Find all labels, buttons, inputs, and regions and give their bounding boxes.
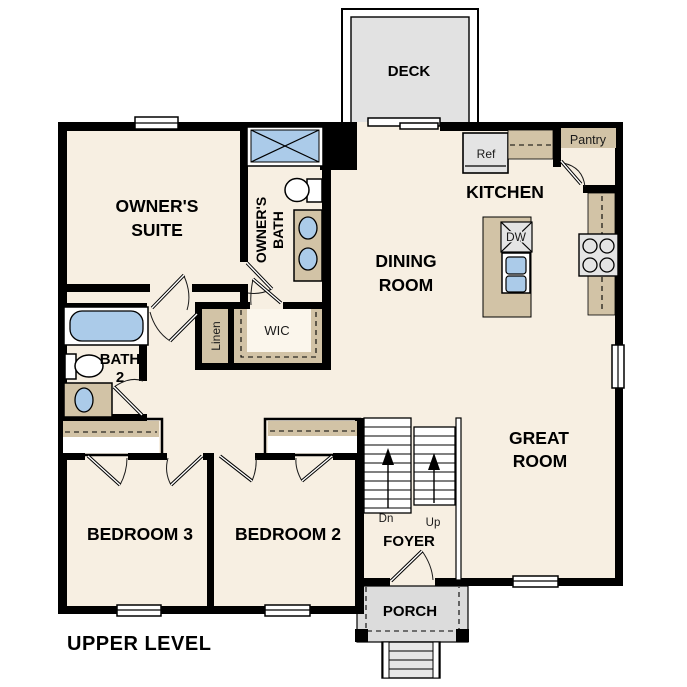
stairs-up-label: Up xyxy=(426,517,441,529)
vanity-icon xyxy=(294,210,322,281)
window xyxy=(117,605,161,616)
dining-label-line1: DINING xyxy=(375,251,436,271)
ref-label: Ref xyxy=(477,147,496,161)
toilet-icon xyxy=(65,354,103,379)
window xyxy=(135,117,178,129)
pantry-label: Pantry xyxy=(570,133,607,147)
room-foyer: FOYER xyxy=(383,533,435,550)
room-bedroom2: BEDROOM 2 xyxy=(235,524,341,544)
porch-label: PORCH xyxy=(383,603,437,620)
floor-plan-page: DECK PORCH xyxy=(0,0,687,687)
window xyxy=(265,605,310,616)
refrigerator-appliance: Ref xyxy=(463,133,508,173)
dining-label-line2: ROOM xyxy=(379,275,433,295)
great-room-label-line2: ROOM xyxy=(513,451,567,471)
bedroom3-label: BEDROOM 3 xyxy=(87,524,193,544)
floor-plan-drawing: DECK PORCH xyxy=(0,0,687,687)
owners-suite-label-line1: OWNER'S xyxy=(116,196,199,216)
kitchen-sink-icon xyxy=(502,253,530,293)
great-room-label-line1: GREAT xyxy=(509,428,569,448)
stairs-down-label: Dn xyxy=(379,513,394,525)
dishwasher-icon: DW xyxy=(501,222,532,252)
toilet-icon xyxy=(285,179,322,203)
level-label: UPPER LEVEL xyxy=(67,633,211,655)
window xyxy=(513,576,558,587)
shower-icon xyxy=(247,127,323,166)
bedroom2-label: BEDROOM 2 xyxy=(235,524,341,544)
dw-label: DW xyxy=(506,230,527,244)
linen-label: Linen xyxy=(209,321,223,350)
owners-suite-label-line2: SUITE xyxy=(131,220,183,240)
owners-bath-label-line1: OWNER'S xyxy=(253,197,269,263)
stair-railing xyxy=(456,418,461,580)
porch-area: PORCH xyxy=(355,586,469,642)
wic-label: WIC xyxy=(264,323,289,338)
stove-icon xyxy=(579,234,618,276)
foyer-label: FOYER xyxy=(383,533,435,550)
bedroom3-closet xyxy=(60,419,162,455)
kitchen-island: DW xyxy=(483,217,532,317)
wic-closet: WIC xyxy=(234,309,322,363)
linen-closet: Linen xyxy=(202,309,228,363)
deck-area: DECK xyxy=(342,9,478,125)
bathtub-icon xyxy=(64,307,148,345)
deck-label: DECK xyxy=(388,63,431,80)
porch-steps xyxy=(382,642,440,678)
room-bedroom3: BEDROOM 3 xyxy=(87,524,193,544)
upper-cabinet xyxy=(508,130,553,159)
vanity-icon xyxy=(64,383,112,417)
owners-bath-label-line2: BATH xyxy=(270,211,286,249)
bath2-label-line1: BATH xyxy=(100,351,141,368)
window xyxy=(612,345,624,388)
kitchen-label: KITCHEN xyxy=(466,182,544,202)
pantry-closet: Pantry xyxy=(561,128,616,187)
bedroom2-closet xyxy=(265,419,360,455)
